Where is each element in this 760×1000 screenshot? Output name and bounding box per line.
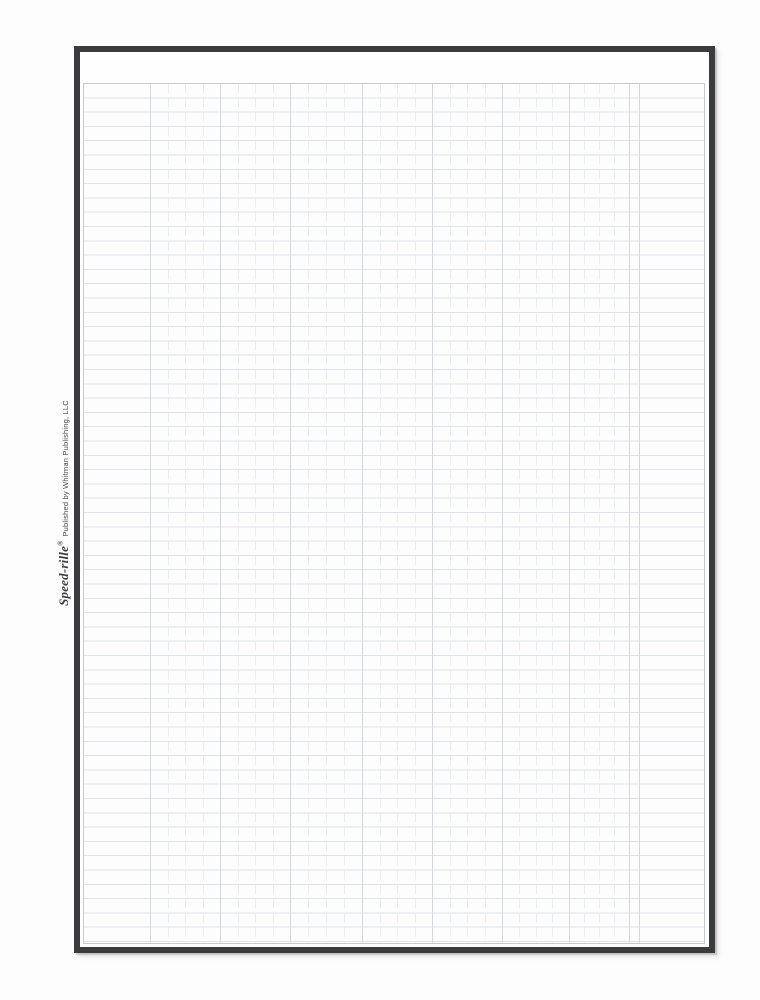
column-subrule-line — [397, 84, 398, 943]
column-subrule-line — [344, 84, 345, 943]
registered-trademark-symbol: ® — [57, 541, 65, 546]
side-brand-text: Speed-rille®Published by Whitman Publish… — [55, 400, 73, 606]
column-subrule-line — [168, 84, 169, 943]
column-subrule-line — [450, 84, 451, 943]
column-subrule-line — [273, 84, 274, 943]
column-subrule-line — [485, 84, 486, 943]
column-subrule-line — [380, 84, 381, 943]
column-boundary-line — [220, 84, 221, 943]
scanned-ledger-page: Speed-rille®Published by Whitman Publish… — [0, 0, 760, 1000]
column-subrule-line — [614, 84, 615, 943]
column-subrule-line — [326, 84, 327, 943]
column-subrule-line — [203, 84, 204, 943]
column-subrule-line — [238, 84, 239, 943]
column-boundary-line — [432, 84, 433, 943]
column-boundary-line — [629, 84, 630, 943]
column-subrule-line — [552, 84, 553, 943]
column-boundary-line — [290, 84, 291, 943]
column-subrule-line — [415, 84, 416, 943]
column-subrule-line — [255, 84, 256, 943]
column-boundary-line — [150, 84, 151, 943]
column-boundary-line — [502, 84, 503, 943]
column-subrule-line — [185, 84, 186, 943]
column-subrule-line — [467, 84, 468, 943]
column-subrule-line — [584, 84, 585, 943]
column-boundary-line — [362, 84, 363, 943]
column-subrule-line — [599, 84, 600, 943]
column-subrule-line — [536, 84, 537, 943]
brand-label: Speed-rille — [56, 546, 71, 606]
column-boundary-line — [569, 84, 570, 943]
column-subrule-line — [308, 84, 309, 943]
column-boundary-line — [639, 84, 640, 943]
column-subrule-line — [519, 84, 520, 943]
ledger-grid — [83, 83, 705, 944]
brand-name: Speed-rille® — [56, 541, 71, 606]
publisher-label: Published by Whitman Publishing, LLC — [61, 400, 70, 536]
